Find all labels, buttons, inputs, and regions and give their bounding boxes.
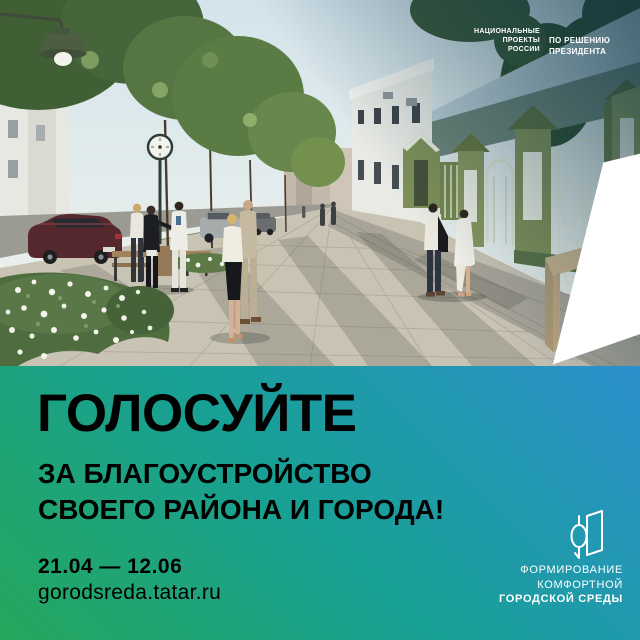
president-note: ПО РЕШЕНИЮ ПРЕЗИДЕНТА bbox=[549, 36, 610, 57]
website-link[interactable]: gorodsreda.tatar.ru bbox=[38, 581, 221, 605]
voting-dates: 21.04 — 12.06 bbox=[38, 555, 182, 579]
president-line: ПРЕЗИДЕНТА bbox=[549, 47, 610, 58]
president-line: ПО РЕШЕНИЮ bbox=[549, 36, 610, 47]
fkgs-logo: ФОРМИРОВАНИЕ КОМФОРТНОЙ ГОРОДСКОЙ СРЕДЫ bbox=[499, 563, 623, 607]
headline: ГОЛОСУЙТЕ bbox=[37, 384, 357, 444]
poster: НАЦИОНАЛЬНЫЕ ПРОЕКТЫ РОССИИ ПО РЕШЕНИЮ П… bbox=[0, 0, 640, 640]
fkgs-line: КОМФОРТНОЙ bbox=[499, 578, 623, 593]
subheadline-line2: СВОЕГО РАЙОНА И ГОРОДА! bbox=[38, 494, 444, 526]
white-flag-icon bbox=[460, 30, 640, 396]
house-sprout-icon bbox=[565, 508, 607, 562]
fkgs-line: ГОРОДСКОЙ СРЕДЫ bbox=[499, 592, 623, 607]
subheadline-line1: ЗА БЛАГОУСТРОЙСТВО bbox=[38, 458, 372, 490]
street-render-photo: НАЦИОНАЛЬНЫЕ ПРОЕКТЫ РОССИИ ПО РЕШЕНИЮ П… bbox=[0, 0, 640, 366]
fkgs-line: ФОРМИРОВАНИЕ bbox=[499, 563, 623, 578]
